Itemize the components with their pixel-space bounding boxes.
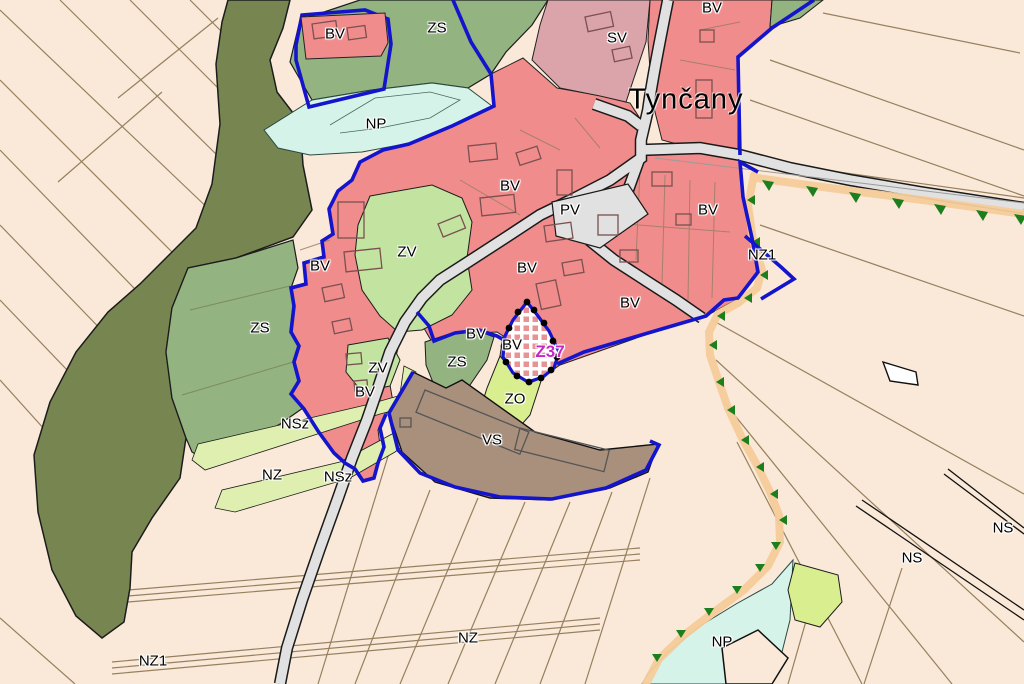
zoning-map-viewport[interactable]: BVBVBVBVBVBVBVBVBVBVSVZSZSZSNPNPZVZVPVZO… [0, 0, 1024, 684]
zone-label: NZ [262, 467, 282, 484]
development-area-label: Z37 [535, 342, 564, 362]
zone-label: BV [500, 178, 520, 195]
zone-label: ZS [250, 320, 269, 337]
zone-label: BV [620, 295, 640, 312]
zone-label: ZS [447, 354, 466, 371]
zone-label: ZS [427, 20, 446, 37]
zone-label: BV [702, 0, 722, 17]
zone-label: NP [712, 634, 733, 651]
zone-label: SV [607, 30, 627, 47]
town-label: Tynčany [629, 84, 744, 117]
zone-label: PV [560, 202, 580, 219]
zone-label: NSz [281, 416, 309, 433]
zone-label: NZ [458, 630, 478, 647]
zone-label: BV [355, 384, 375, 401]
zone-label: BV [502, 337, 522, 354]
zone-label: ZO [505, 391, 526, 408]
zone-label: NSz [324, 469, 352, 486]
zone-label: NS [993, 520, 1014, 537]
zone-label: BV [325, 26, 345, 43]
zone-label: VS [482, 432, 502, 449]
zone-label: BV [310, 258, 330, 275]
zone-label: ZV [368, 360, 387, 377]
labels-layer: BVBVBVBVBVBVBVBVBVBVSVZSZSZSNPNPZVZVPVZO… [0, 0, 1024, 684]
zone-label: NS [902, 550, 923, 567]
zone-label: ZV [397, 244, 416, 261]
zone-label: BV [698, 202, 718, 219]
zone-label: NZ1 [748, 247, 776, 264]
zone-label: NZ1 [139, 653, 167, 670]
zone-label: NP [366, 116, 387, 133]
zone-label: BV [517, 260, 537, 277]
zone-label: BV [466, 326, 486, 343]
